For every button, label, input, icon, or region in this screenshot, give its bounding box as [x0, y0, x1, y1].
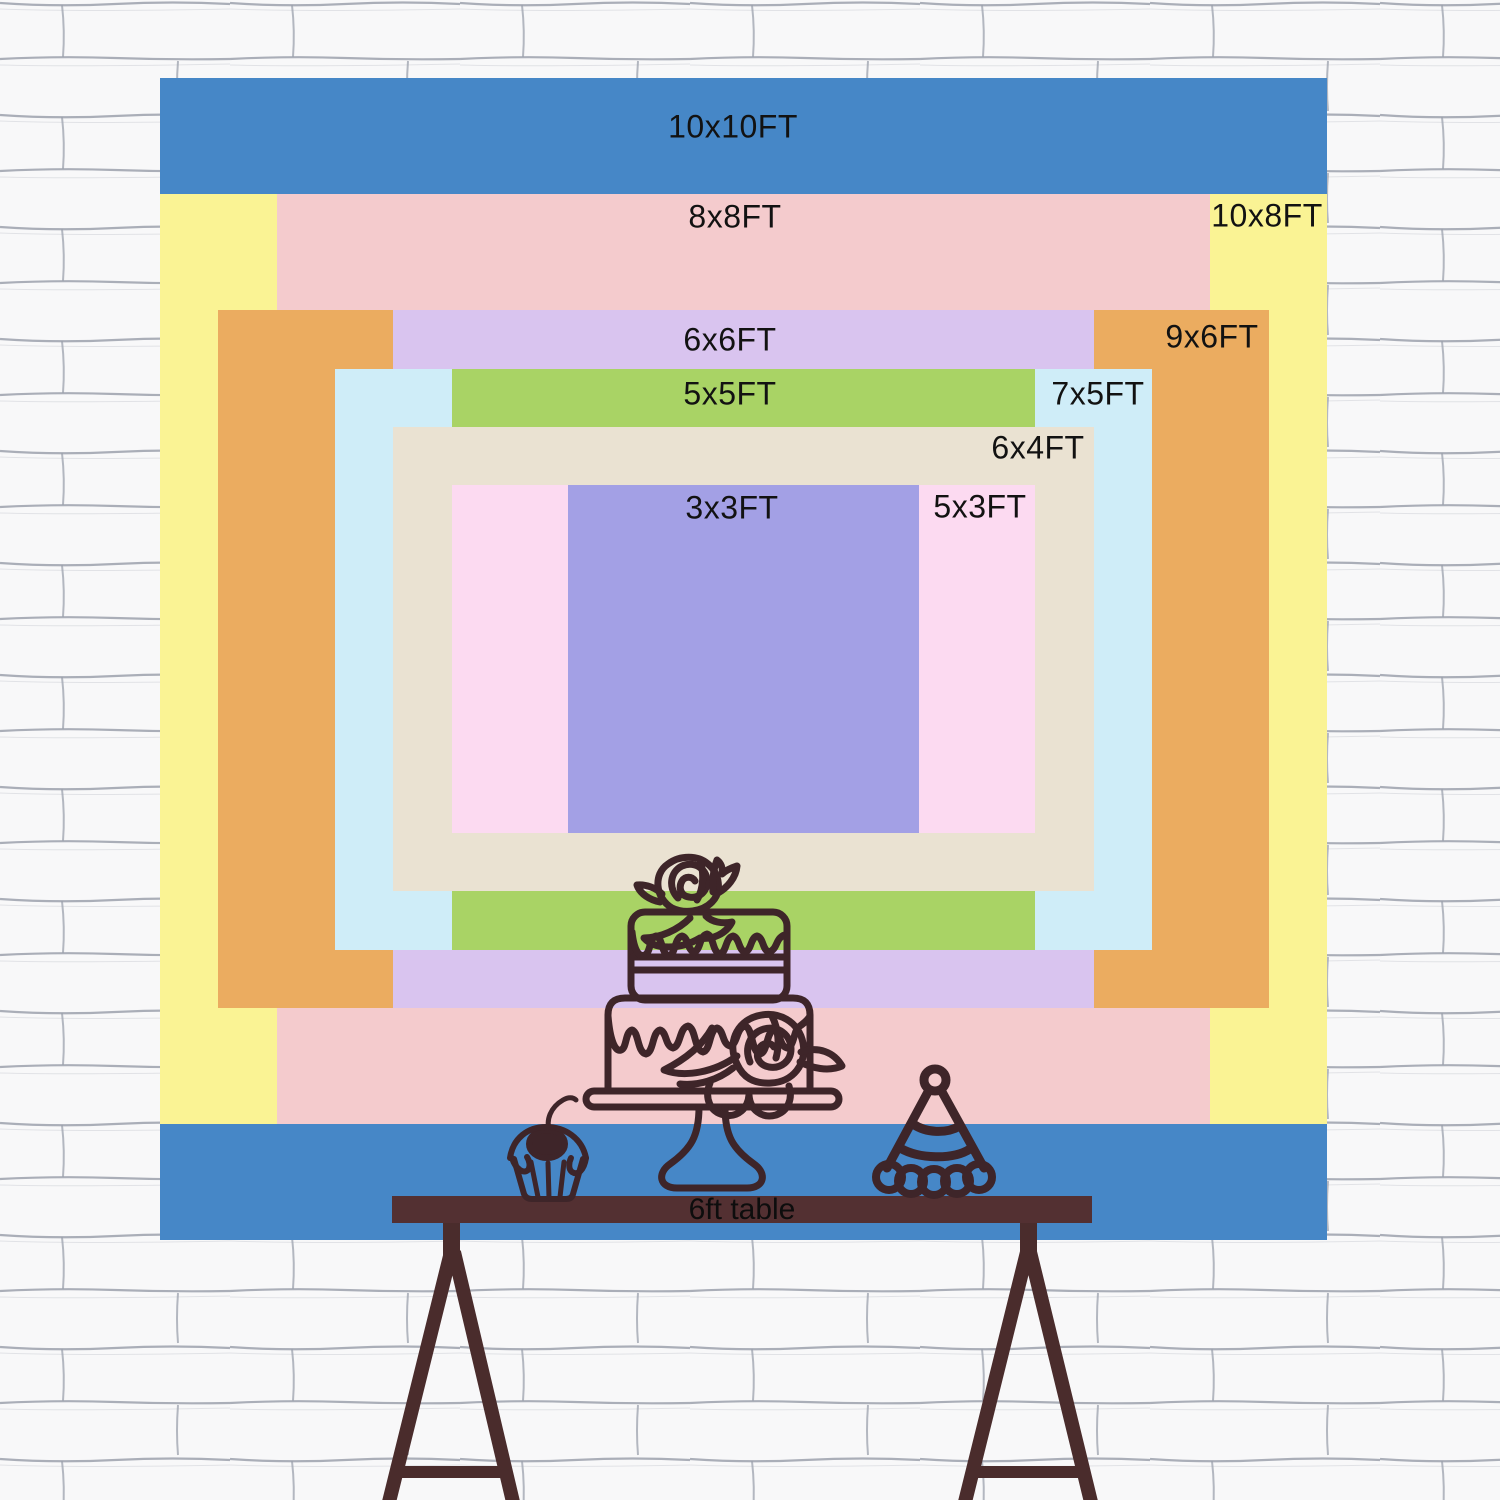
size-label-9x6ft: 9x6FT: [1165, 319, 1258, 356]
size-label-5x5ft: 5x5FT: [683, 376, 776, 413]
size-label-10x8ft: 10x8FT: [1211, 198, 1322, 235]
backdrop-size-chart-poster: 10x10FT10x8FT8x8FT9x6FT6x6FT7x5FT5x5FT6x…: [0, 0, 1500, 1500]
size-label-7x5ft: 7x5FT: [1051, 376, 1144, 413]
size-label-10x10ft: 10x10FT: [668, 109, 798, 146]
size-rect-3x3ft: [568, 485, 918, 834]
backdrop-stack: [160, 78, 1327, 1240]
size-label-6x6ft: 6x6FT: [683, 322, 776, 359]
size-label-6x4ft: 6x4FT: [991, 430, 1084, 467]
size-label-3x3ft: 3x3FT: [685, 490, 778, 527]
size-label-8x8ft: 8x8FT: [688, 199, 781, 236]
table-size-label: 6ft table: [689, 1193, 796, 1227]
size-label-5x3ft: 5x3FT: [933, 489, 1026, 526]
